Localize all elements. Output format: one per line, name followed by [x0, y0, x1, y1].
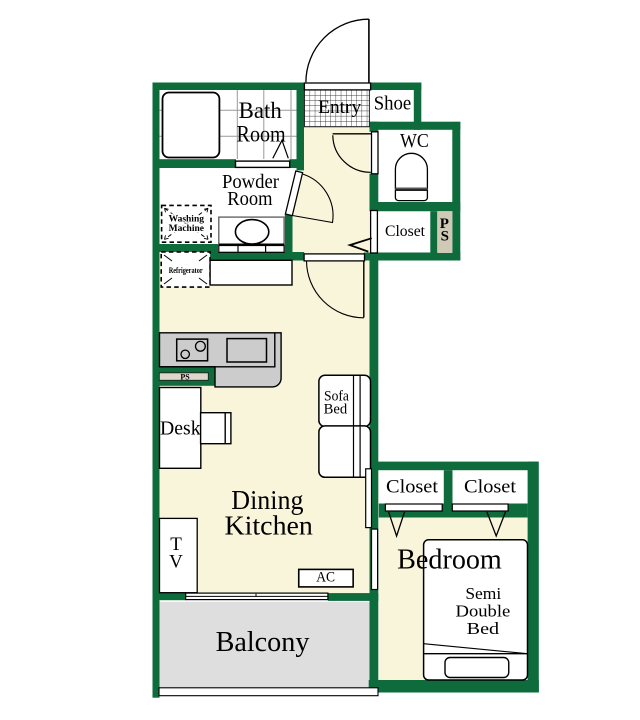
svg-text:Room: Room	[227, 188, 273, 210]
svg-text:Kitchen: Kitchen	[225, 511, 314, 541]
svg-text:Shoe: Shoe	[374, 93, 412, 115]
svg-text:Semi: Semi	[465, 584, 501, 603]
svg-text:Closet: Closet	[386, 476, 439, 497]
svg-text:PS: PS	[180, 372, 190, 381]
svg-text:Bed: Bed	[467, 619, 500, 638]
svg-text:Balcony: Balcony	[216, 627, 310, 658]
svg-text:Bath: Bath	[239, 98, 283, 123]
svg-text:Closet: Closet	[464, 476, 517, 497]
svg-text:V: V	[169, 552, 183, 573]
svg-text:Machine: Machine	[169, 224, 204, 234]
svg-text:Bed: Bed	[324, 402, 348, 418]
svg-text:Desk: Desk	[160, 418, 201, 440]
svg-text:Closet: Closet	[385, 223, 426, 240]
svg-text:Entry: Entry	[318, 97, 362, 118]
svg-text:Refrigerator: Refrigerator	[169, 265, 203, 275]
svg-text:Double: Double	[456, 602, 511, 621]
svg-text:WC: WC	[400, 130, 429, 152]
svg-text:Bedroom: Bedroom	[397, 544, 502, 575]
svg-text:AC: AC	[316, 569, 335, 585]
svg-text:S: S	[441, 229, 449, 245]
svg-text:Room: Room	[237, 122, 286, 147]
